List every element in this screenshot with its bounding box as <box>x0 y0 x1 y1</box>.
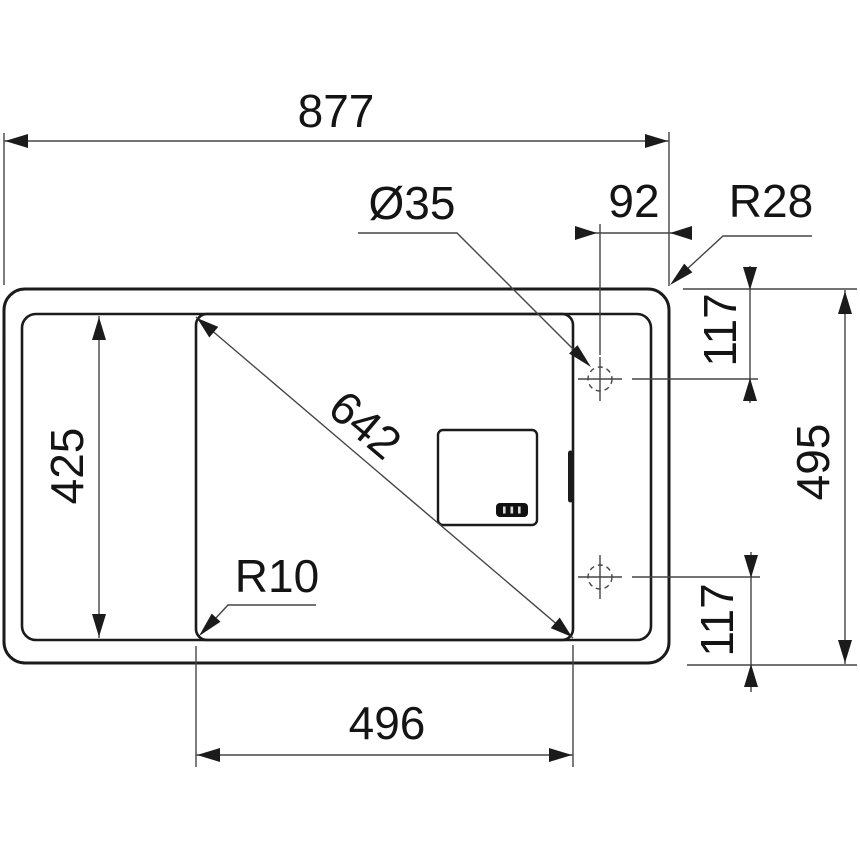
dim-hole-diameter-label: Ø35 <box>369 177 456 229</box>
dim-hole-diameter: Ø35 <box>358 177 591 367</box>
technical-drawing-canvas: 877 92 Ø35 R28 117 495 117 <box>0 0 860 860</box>
dim-bottom-hole-offset: 117 <box>691 552 758 692</box>
dim-877-label: 877 <box>298 85 375 137</box>
dim-425-label: 425 <box>41 428 93 505</box>
dim-495-label: 495 <box>787 424 839 501</box>
dim-r28-label: R28 <box>729 175 813 227</box>
drain-grate-mark <box>496 503 528 517</box>
faucet-hole-bottom <box>578 555 622 599</box>
dim-overall-width: 877 <box>4 85 669 148</box>
dim-496-label: 496 <box>349 697 426 749</box>
sink-inner-rim-outline <box>22 314 651 640</box>
dim-92-label: 92 <box>608 175 659 227</box>
sink-dimension-drawing: 877 92 Ø35 R28 117 495 117 <box>0 0 860 860</box>
dim-bowl-corner-radius: R10 <box>199 550 319 636</box>
dim-hole-edge-offset: 92 <box>575 175 692 240</box>
dim-inner-depth: 425 <box>41 316 106 638</box>
dim-117-top-label: 117 <box>694 293 746 366</box>
dim-overall-depth: 495 <box>787 290 852 664</box>
dim-top-hole-offset: 117 <box>694 266 757 403</box>
dim-117-bottom-label: 117 <box>691 583 743 656</box>
faucet-hole-top <box>578 357 622 401</box>
dim-r10-label: R10 <box>235 550 319 602</box>
dim-bowl-width: 496 <box>196 697 573 762</box>
dim-642-label: 642 <box>319 380 411 469</box>
